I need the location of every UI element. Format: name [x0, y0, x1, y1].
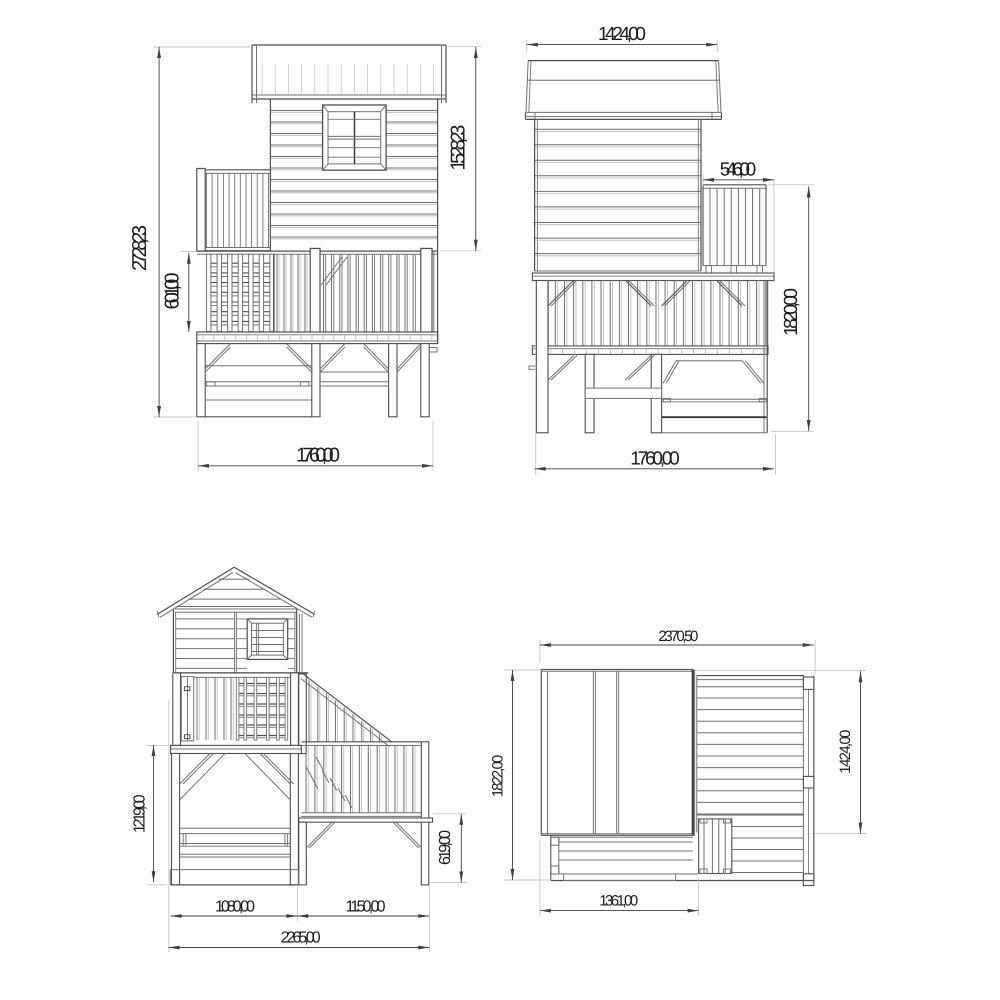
svg-text:1361,00: 1361,00	[599, 893, 638, 910]
svg-text:1080,00: 1080,00	[215, 899, 255, 916]
svg-text:1528,23: 1528,23	[448, 125, 470, 171]
svg-text:1219,00: 1219,00	[132, 794, 149, 833]
svg-text:1820,00: 1820,00	[781, 288, 802, 336]
svg-text:2370,50: 2370,50	[658, 628, 698, 645]
svg-text:2728,23: 2728,23	[129, 225, 151, 271]
svg-text:1760,00: 1760,00	[296, 445, 340, 467]
svg-text:601,00: 601,00	[162, 273, 184, 310]
svg-text:2265,00: 2265,00	[281, 930, 321, 947]
svg-text:1150,00: 1150,00	[346, 899, 386, 916]
svg-text:1424,00: 1424,00	[837, 730, 854, 774]
svg-text:1760,00: 1760,00	[630, 448, 680, 469]
svg-text:1424,00: 1424,00	[598, 24, 646, 45]
svg-text:546,00: 546,00	[720, 159, 757, 180]
svg-text:1822,00: 1822,00	[490, 755, 507, 798]
svg-text:619,00: 619,00	[437, 830, 454, 865]
